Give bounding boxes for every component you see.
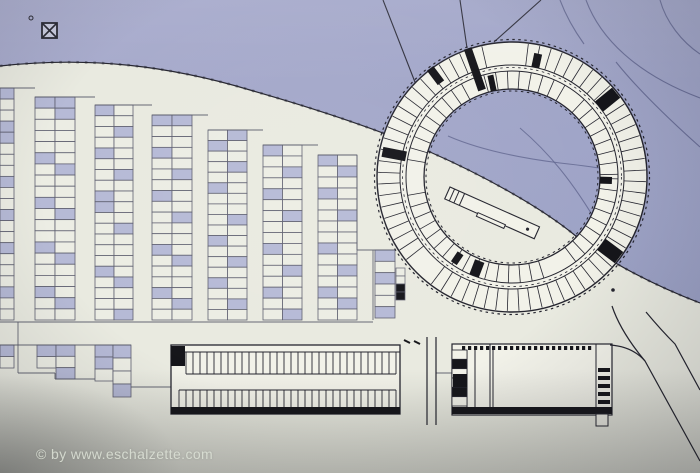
hall-building — [452, 344, 612, 426]
watermark-text: © by www.eschalzette.com — [36, 446, 213, 462]
long-building — [171, 340, 420, 414]
site-plan-photo: © by www.eschalzette.com — [0, 0, 700, 473]
site-plan-drawing — [0, 0, 700, 473]
